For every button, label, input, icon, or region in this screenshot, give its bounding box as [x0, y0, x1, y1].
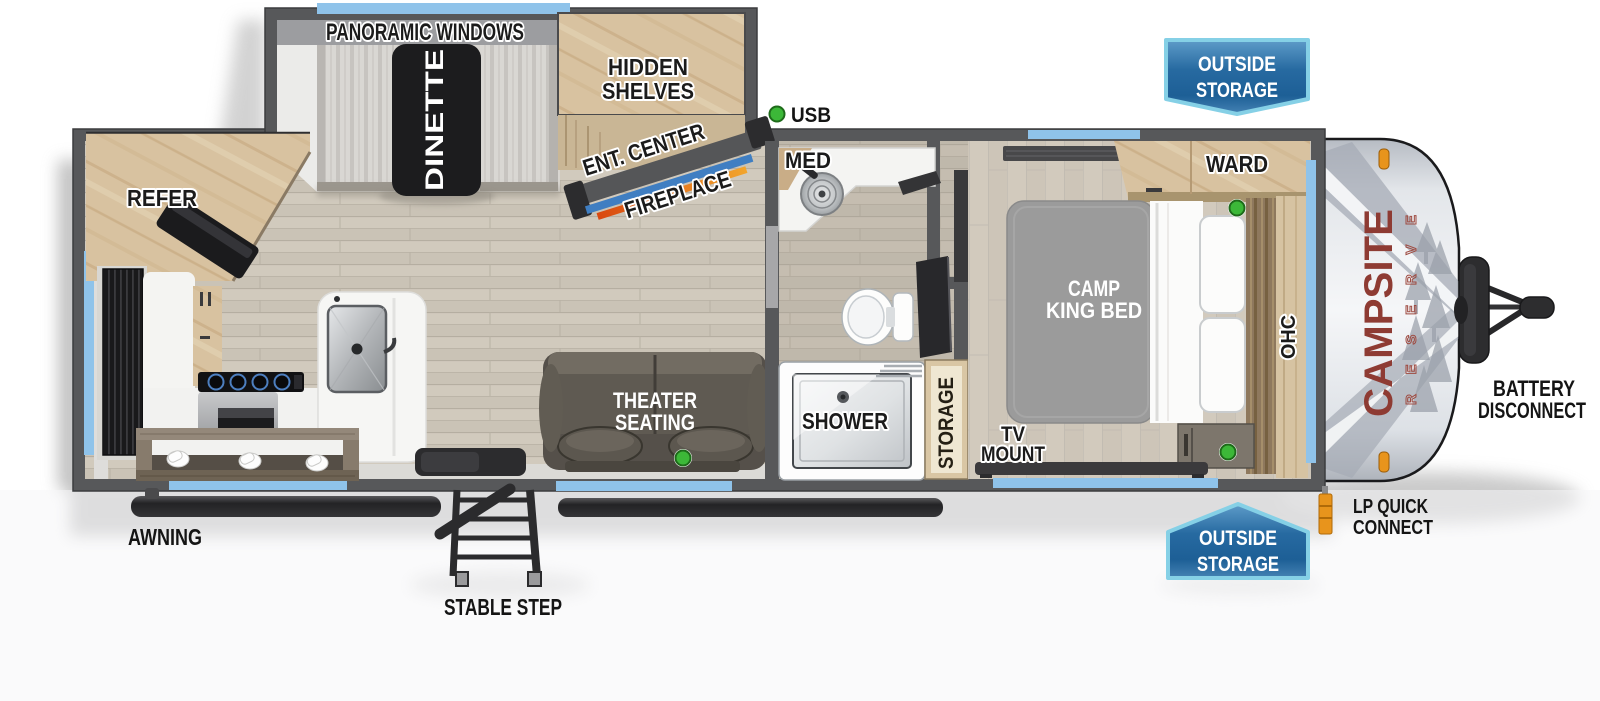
svg-text:STORAGE: STORAGE	[1197, 553, 1279, 576]
svg-text:STORAGE: STORAGE	[1196, 79, 1278, 102]
svg-text:PANORAMIC WINDOWS: PANORAMIC WINDOWS	[326, 19, 524, 46]
svg-text:SHOWER: SHOWER	[802, 408, 888, 434]
svg-text:MED: MED	[785, 148, 831, 173]
svg-text:KING BED: KING BED	[1046, 298, 1142, 323]
svg-text:REFER: REFER	[127, 185, 197, 211]
svg-text:SEATING: SEATING	[615, 410, 695, 435]
svg-text:MOUNT: MOUNT	[981, 443, 1045, 466]
svg-text:DINETTE: DINETTE	[421, 49, 449, 191]
svg-text:AWNING: AWNING	[128, 524, 202, 550]
svg-text:CAMPSITE: CAMPSITE	[1357, 209, 1401, 417]
svg-text:LP QUICK: LP QUICK	[1353, 496, 1428, 518]
svg-text:DISCONNECT: DISCONNECT	[1478, 398, 1586, 423]
svg-text:USB: USB	[791, 104, 831, 127]
svg-text:STABLE STEP: STABLE STEP	[444, 594, 562, 620]
svg-text:SHELVES: SHELVES	[602, 78, 694, 104]
svg-text:OUTSIDE: OUTSIDE	[1198, 53, 1276, 76]
svg-text:OUTSIDE: OUTSIDE	[1199, 527, 1277, 550]
svg-text:WARD: WARD	[1206, 151, 1268, 177]
svg-text:STORAGE: STORAGE	[935, 377, 958, 469]
svg-text:HIDDEN: HIDDEN	[608, 54, 688, 80]
svg-text:CONNECT: CONNECT	[1353, 517, 1433, 539]
svg-text:OHC: OHC	[1278, 315, 1300, 359]
